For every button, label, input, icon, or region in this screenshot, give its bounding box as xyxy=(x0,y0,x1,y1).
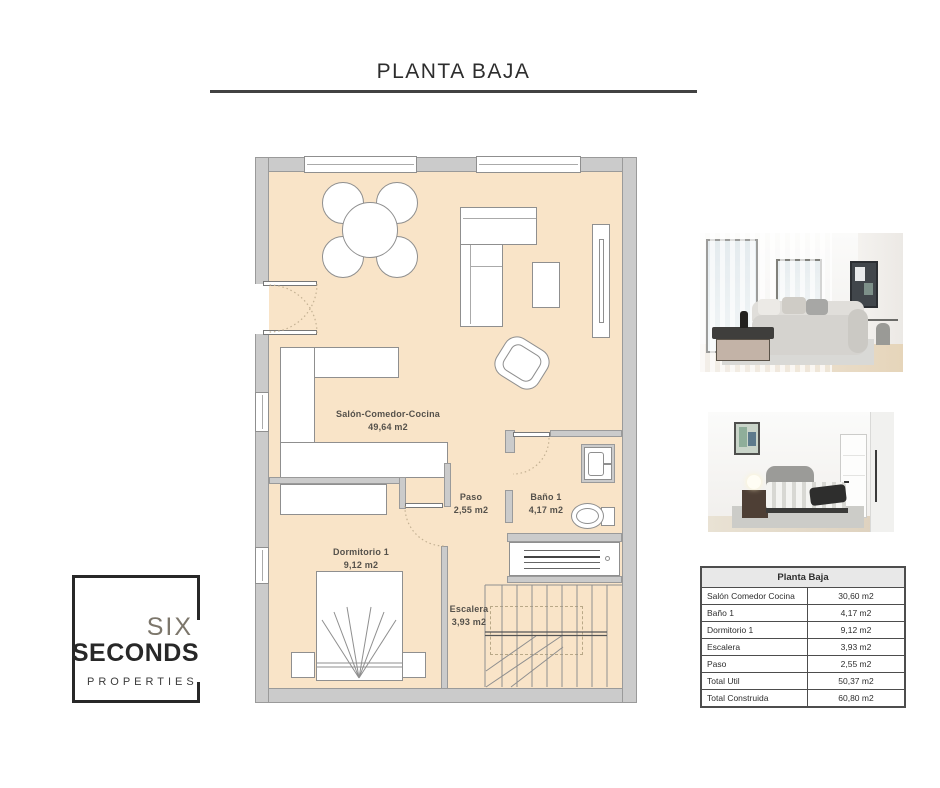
photo2-nightstand xyxy=(742,490,768,518)
table-title: Planta Baja xyxy=(701,567,905,588)
room-label-dormitorio: Dormitorio 19,12 m2 xyxy=(333,546,389,572)
photo-coffee-table-base xyxy=(716,339,770,361)
photo-sofa-arm xyxy=(848,309,868,353)
table-row: Total Construida60,80 m2 xyxy=(701,690,905,708)
photo2-bed-base xyxy=(766,508,848,513)
brand-logo: SIX SECONDS PROPERTIES xyxy=(72,575,200,703)
title-rule xyxy=(210,90,697,93)
photo2-wardrobe xyxy=(870,412,894,532)
photo-cushion xyxy=(782,297,806,314)
table-row: Dormitorio 19,12 m2 xyxy=(701,622,905,639)
photo2-wall-art xyxy=(734,422,760,455)
logo-word-seconds: SECONDS xyxy=(72,639,199,668)
bedroom-photo xyxy=(708,412,894,532)
photo-vase xyxy=(740,311,748,328)
logo-word-six: SIX xyxy=(147,613,193,642)
photo2-lamp xyxy=(747,475,761,489)
photo-desk xyxy=(866,319,898,321)
table-row: Baño 14,17 m2 xyxy=(701,605,905,622)
table-row: Paso2,55 m2 xyxy=(701,656,905,673)
page-title: PLANTA BAJA xyxy=(210,60,697,84)
room-label-salon: Salón-Comedor-Cocina49,64 m2 xyxy=(336,408,440,434)
area-summary-table: Planta Baja Salón Comedor Cocina30,60 m2… xyxy=(700,566,906,708)
photo-chair xyxy=(876,323,890,345)
table-row: Escalera3,93 m2 xyxy=(701,639,905,656)
living-room-photo xyxy=(700,233,903,372)
floor-plan: Salón-Comedor-Cocina49,64 m2 Paso2,55 m2… xyxy=(255,147,637,705)
plan-linework xyxy=(255,147,637,705)
room-label-paso: Paso2,55 m2 xyxy=(454,491,488,517)
photo-cushion-dark xyxy=(806,299,828,315)
page: PLANTA BAJA xyxy=(0,0,940,788)
photo-coffee-table-top xyxy=(712,327,774,339)
room-label-escalera: Escalera3,93 m2 xyxy=(450,603,489,629)
room-label-bano: Baño 14,17 m2 xyxy=(529,491,563,517)
photo-cushion xyxy=(758,299,780,315)
logo-word-properties: PROPERTIES xyxy=(87,676,198,688)
table-row: Salón Comedor Cocina30,60 m2 xyxy=(701,588,905,605)
table-row: Total Util50,37 m2 xyxy=(701,673,905,690)
